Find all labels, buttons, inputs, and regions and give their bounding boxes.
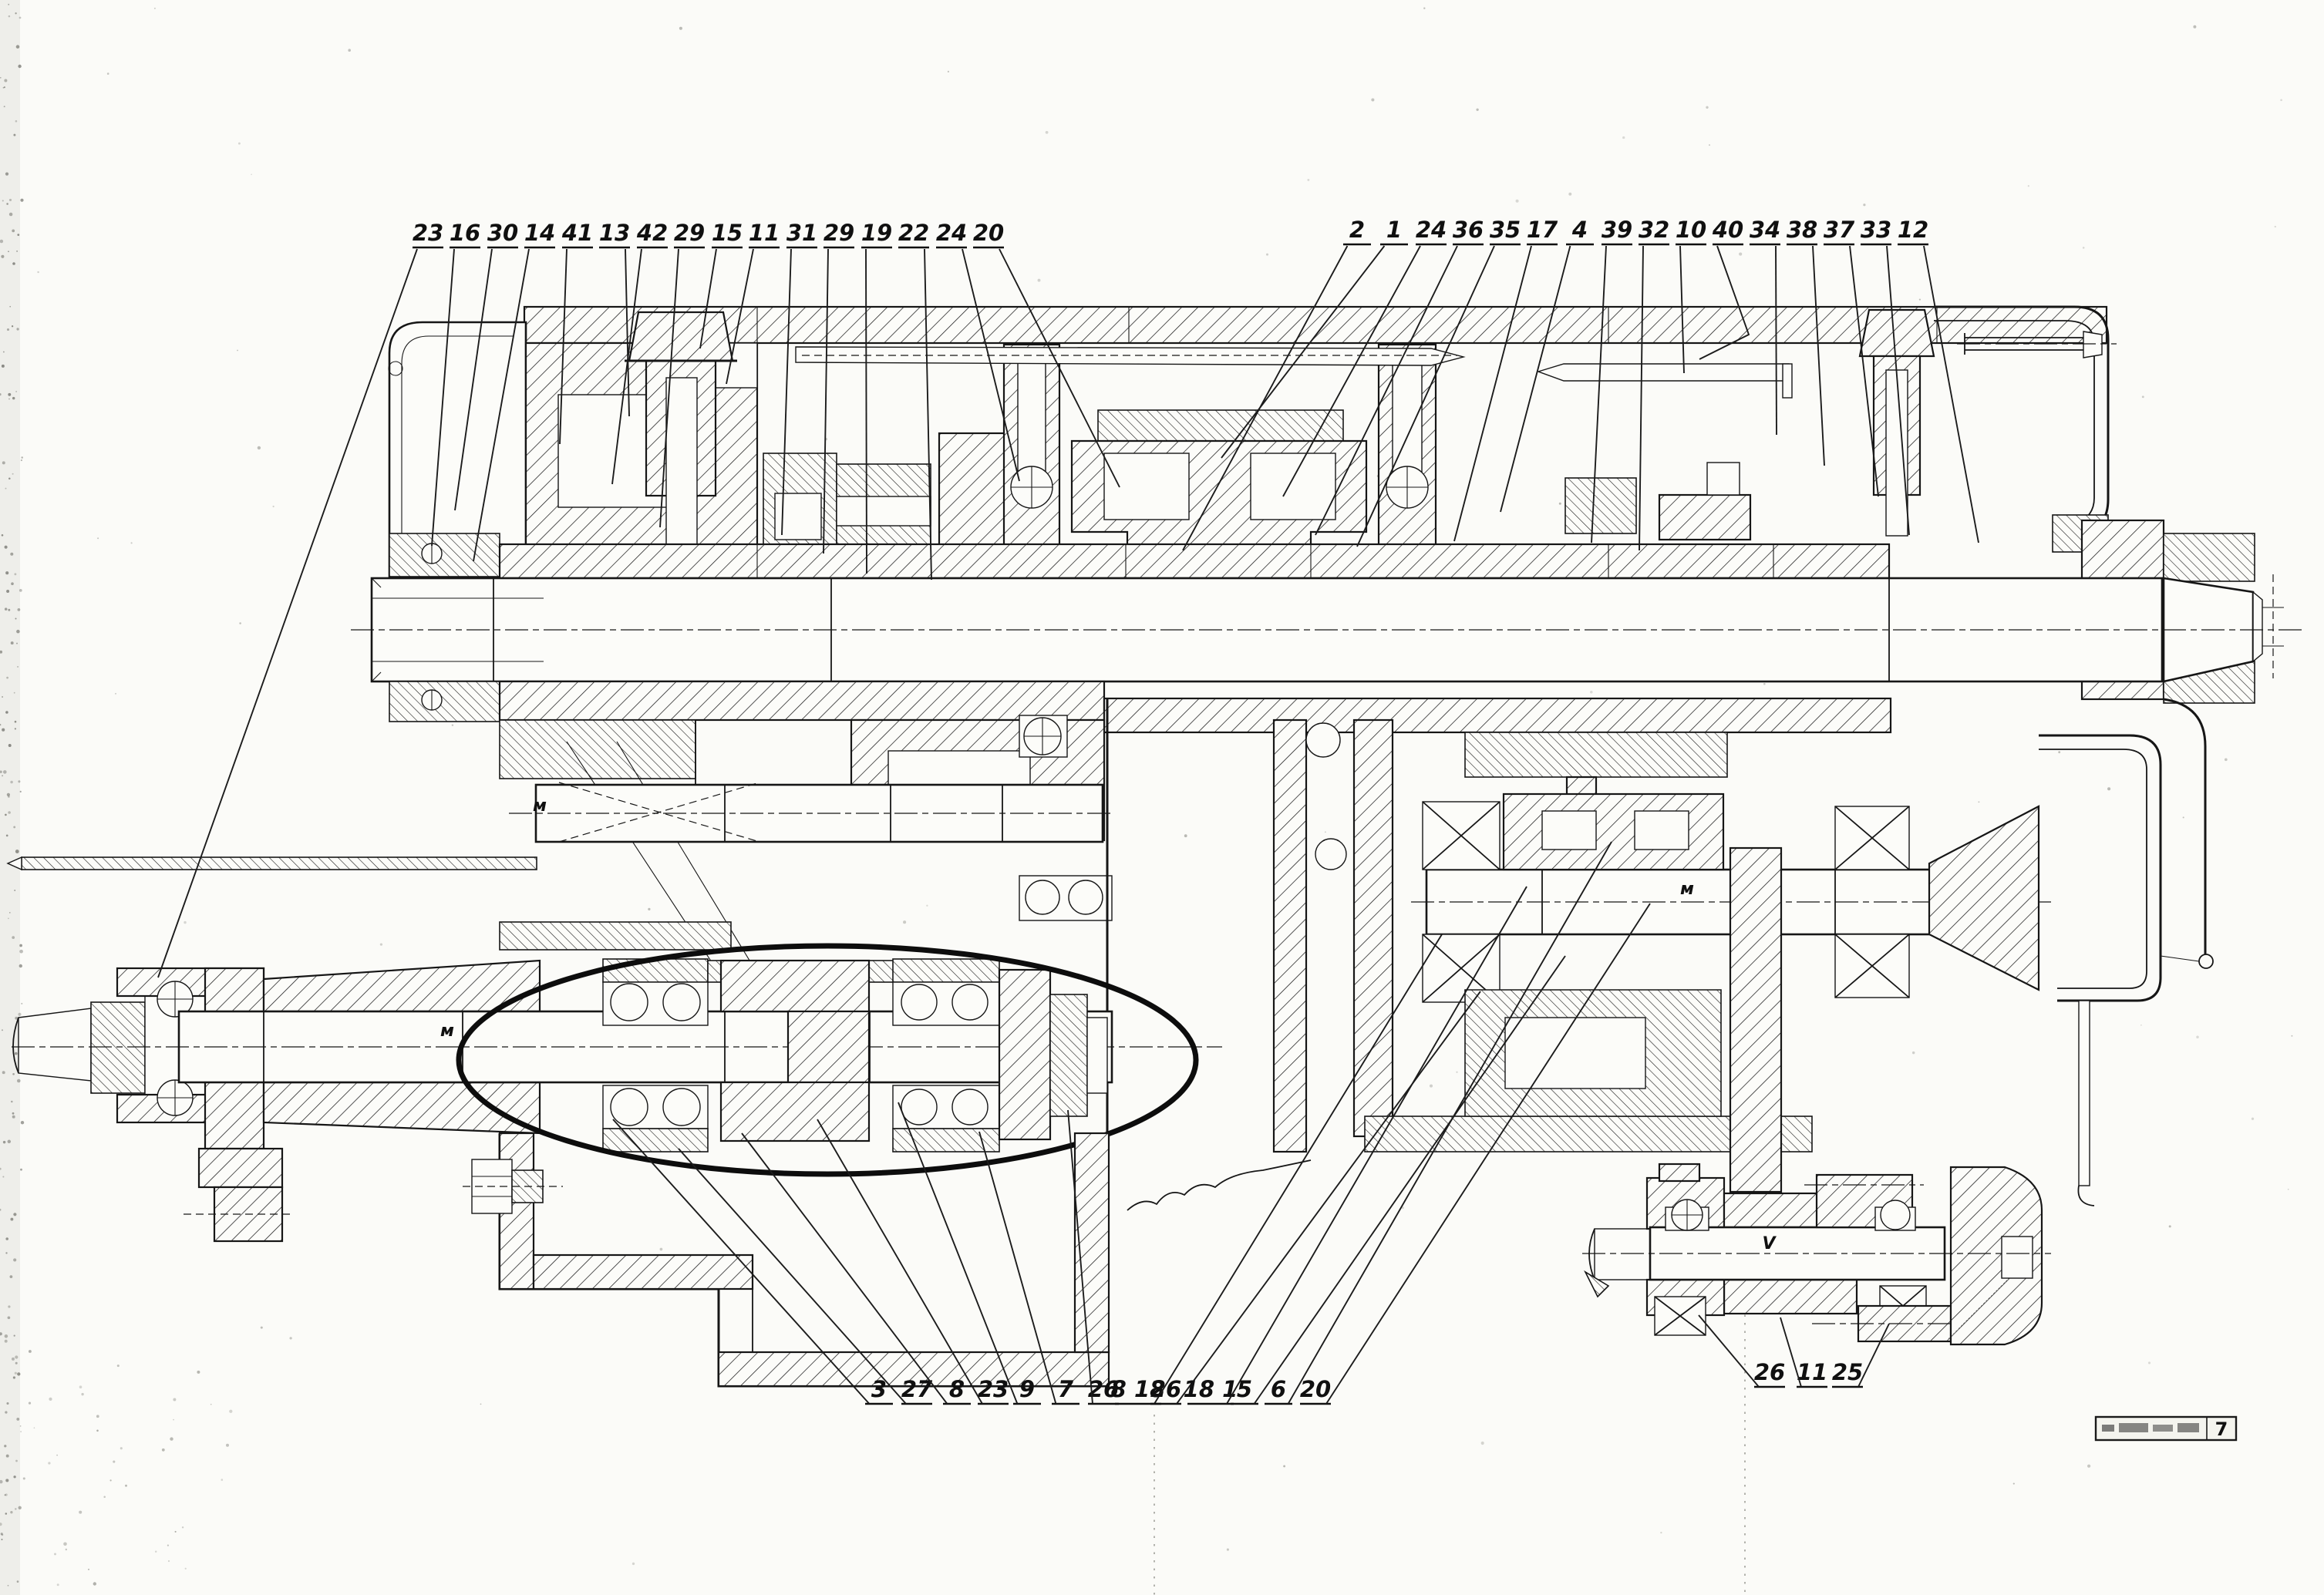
callout-label: 24 [1416, 217, 1447, 243]
callout-label: 5 [1237, 1376, 1252, 1402]
callout-label: 25 [1832, 1359, 1863, 1385]
callout-label: 19 [861, 220, 892, 246]
callout-label: 8 [949, 1376, 965, 1402]
technical-drawing-canvas: 2316301441134229151131291922242021243635… [0, 0, 2324, 1595]
view-label-м: м [1680, 880, 1694, 899]
title-stamp: 7 [2096, 1417, 2236, 1440]
view-label-м: м [440, 1021, 454, 1041]
callout-label: 16 [450, 220, 480, 246]
callout-label: 1 [1386, 217, 1402, 243]
hanging-pin [2079, 1001, 2090, 1186]
stamp-smudge [2119, 1423, 2148, 1432]
gland-seal [389, 533, 500, 577]
callout-label: 20 [973, 220, 1004, 246]
callout-label: 24 [936, 220, 967, 246]
callout-label: 9 [1019, 1376, 1035, 1402]
stamp-smudge [2102, 1425, 2114, 1432]
callout-label: 22 [898, 220, 929, 246]
callout-label: 12 [1898, 217, 1928, 243]
leader-line [866, 249, 867, 574]
callout-label: 37 [1824, 217, 1855, 243]
callout-label: 15 [712, 220, 743, 246]
paper-background [0, 0, 2324, 1595]
stamp-smudge [2177, 1423, 2199, 1432]
lower-sleeve-band [500, 681, 1104, 720]
callout-label: 11 [749, 220, 780, 246]
gear-hub [721, 961, 869, 1011]
gland-seal [389, 681, 500, 722]
shifter-bar [1538, 364, 1789, 381]
callout-label: 13 [599, 220, 630, 246]
callout-label: 6 [1271, 1376, 1286, 1402]
ball-bearing-icon [1881, 1200, 1910, 1230]
callout-label: 38 [1787, 217, 1817, 243]
callout-label: 29 [674, 220, 705, 246]
stamp-smudge [2153, 1425, 2173, 1432]
stud-nut [629, 312, 733, 361]
callout-label: 11 [1797, 1359, 1827, 1385]
ball-bearing-icon [1315, 839, 1346, 870]
callout-label: 34 [1750, 217, 1780, 243]
shaft-tip [19, 1008, 91, 1081]
callout-label: 39 [1602, 217, 1632, 243]
callout-label: 35 [1490, 217, 1521, 243]
callout-label: 26 [1754, 1359, 1785, 1385]
shaft-nut [91, 1002, 145, 1093]
control-rod [22, 857, 537, 870]
callout-label: 29 [824, 220, 854, 246]
callout-label: 41 [561, 220, 593, 246]
long-bolt-head [2083, 331, 2102, 358]
aux-shaft-stub [1595, 1229, 1650, 1280]
lower-sleeve-band [1104, 698, 1891, 732]
stamp-sheet-number: 7 [2215, 1418, 2228, 1440]
callout-label: 4 [1571, 217, 1588, 243]
ball-bearing-icon [1306, 723, 1340, 757]
scanned-drawing-page: 2316301441134229151131291922242021243635… [0, 0, 2324, 1595]
stud-nut [1860, 310, 1934, 356]
callout-label: 31 [786, 220, 817, 246]
callout-label: 33 [1861, 217, 1891, 243]
callout-label: 42 [636, 220, 668, 246]
callout-label: 17 [1527, 217, 1558, 243]
callout-label: 26 [1150, 1376, 1181, 1402]
callout-label: 10 [1676, 217, 1706, 243]
view-label-V: V [1762, 1234, 1777, 1253]
drum-cap [1098, 410, 1343, 441]
spindle-sleeve [500, 544, 1889, 578]
callout-label: 23 [413, 220, 443, 246]
callout-label: 2 [1349, 217, 1365, 243]
callout-label: 20 [1300, 1376, 1331, 1402]
callout-label: 40 [1712, 217, 1743, 243]
callout-label: 36 [1453, 217, 1484, 243]
callout-label: 23 [978, 1376, 1009, 1402]
callout-label: 7 [1058, 1376, 1074, 1402]
view-label-м: м [533, 796, 547, 816]
leader-line [1776, 246, 1777, 435]
callout-label: 32 [1639, 217, 1669, 243]
callout-label: 30 [487, 220, 518, 246]
callout-label: 14 [524, 220, 555, 246]
